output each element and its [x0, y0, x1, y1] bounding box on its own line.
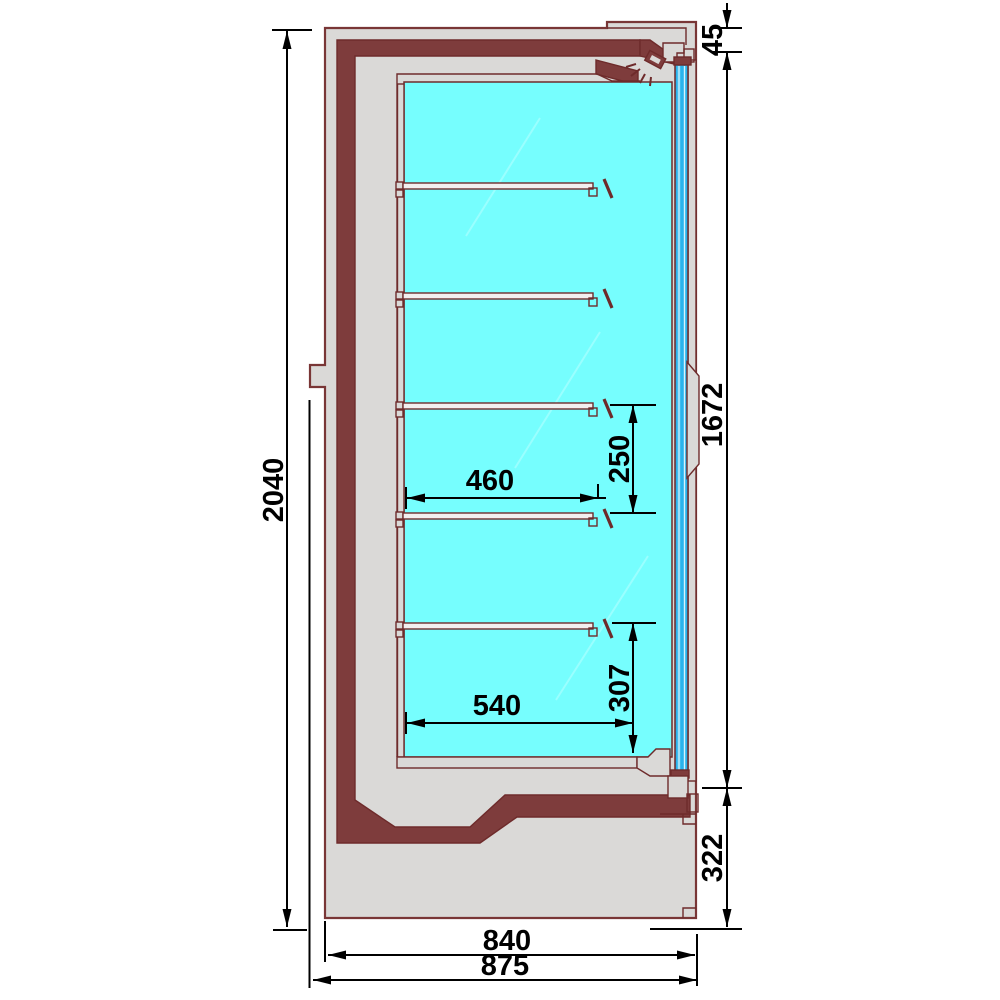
- dim-overall-depth-label: 875: [481, 950, 529, 982]
- dim-top-frame-label: 45: [697, 24, 729, 56]
- door-glass: [675, 63, 688, 777]
- cabinet-section-drawing: 2040 45 1672 322 250 307 460 540: [0, 0, 1000, 1000]
- dim-base-height-label: 322: [697, 834, 729, 882]
- dim-deck-depth-label: 540: [473, 690, 521, 722]
- glass-top-clamp: [674, 57, 691, 65]
- dim-shelf-depth-label: 460: [466, 465, 514, 497]
- dim-overall-height-label: 2040: [258, 458, 290, 523]
- dim-shelf-spacing-label: 250: [604, 435, 636, 483]
- dim-bottom-gap-label: 307: [604, 664, 636, 712]
- dim-door-height-label: 1672: [697, 383, 729, 448]
- door-bottom-holder: [668, 776, 688, 798]
- bottom-deck: [397, 757, 637, 768]
- dim-overall-height: 2040: [258, 30, 312, 930]
